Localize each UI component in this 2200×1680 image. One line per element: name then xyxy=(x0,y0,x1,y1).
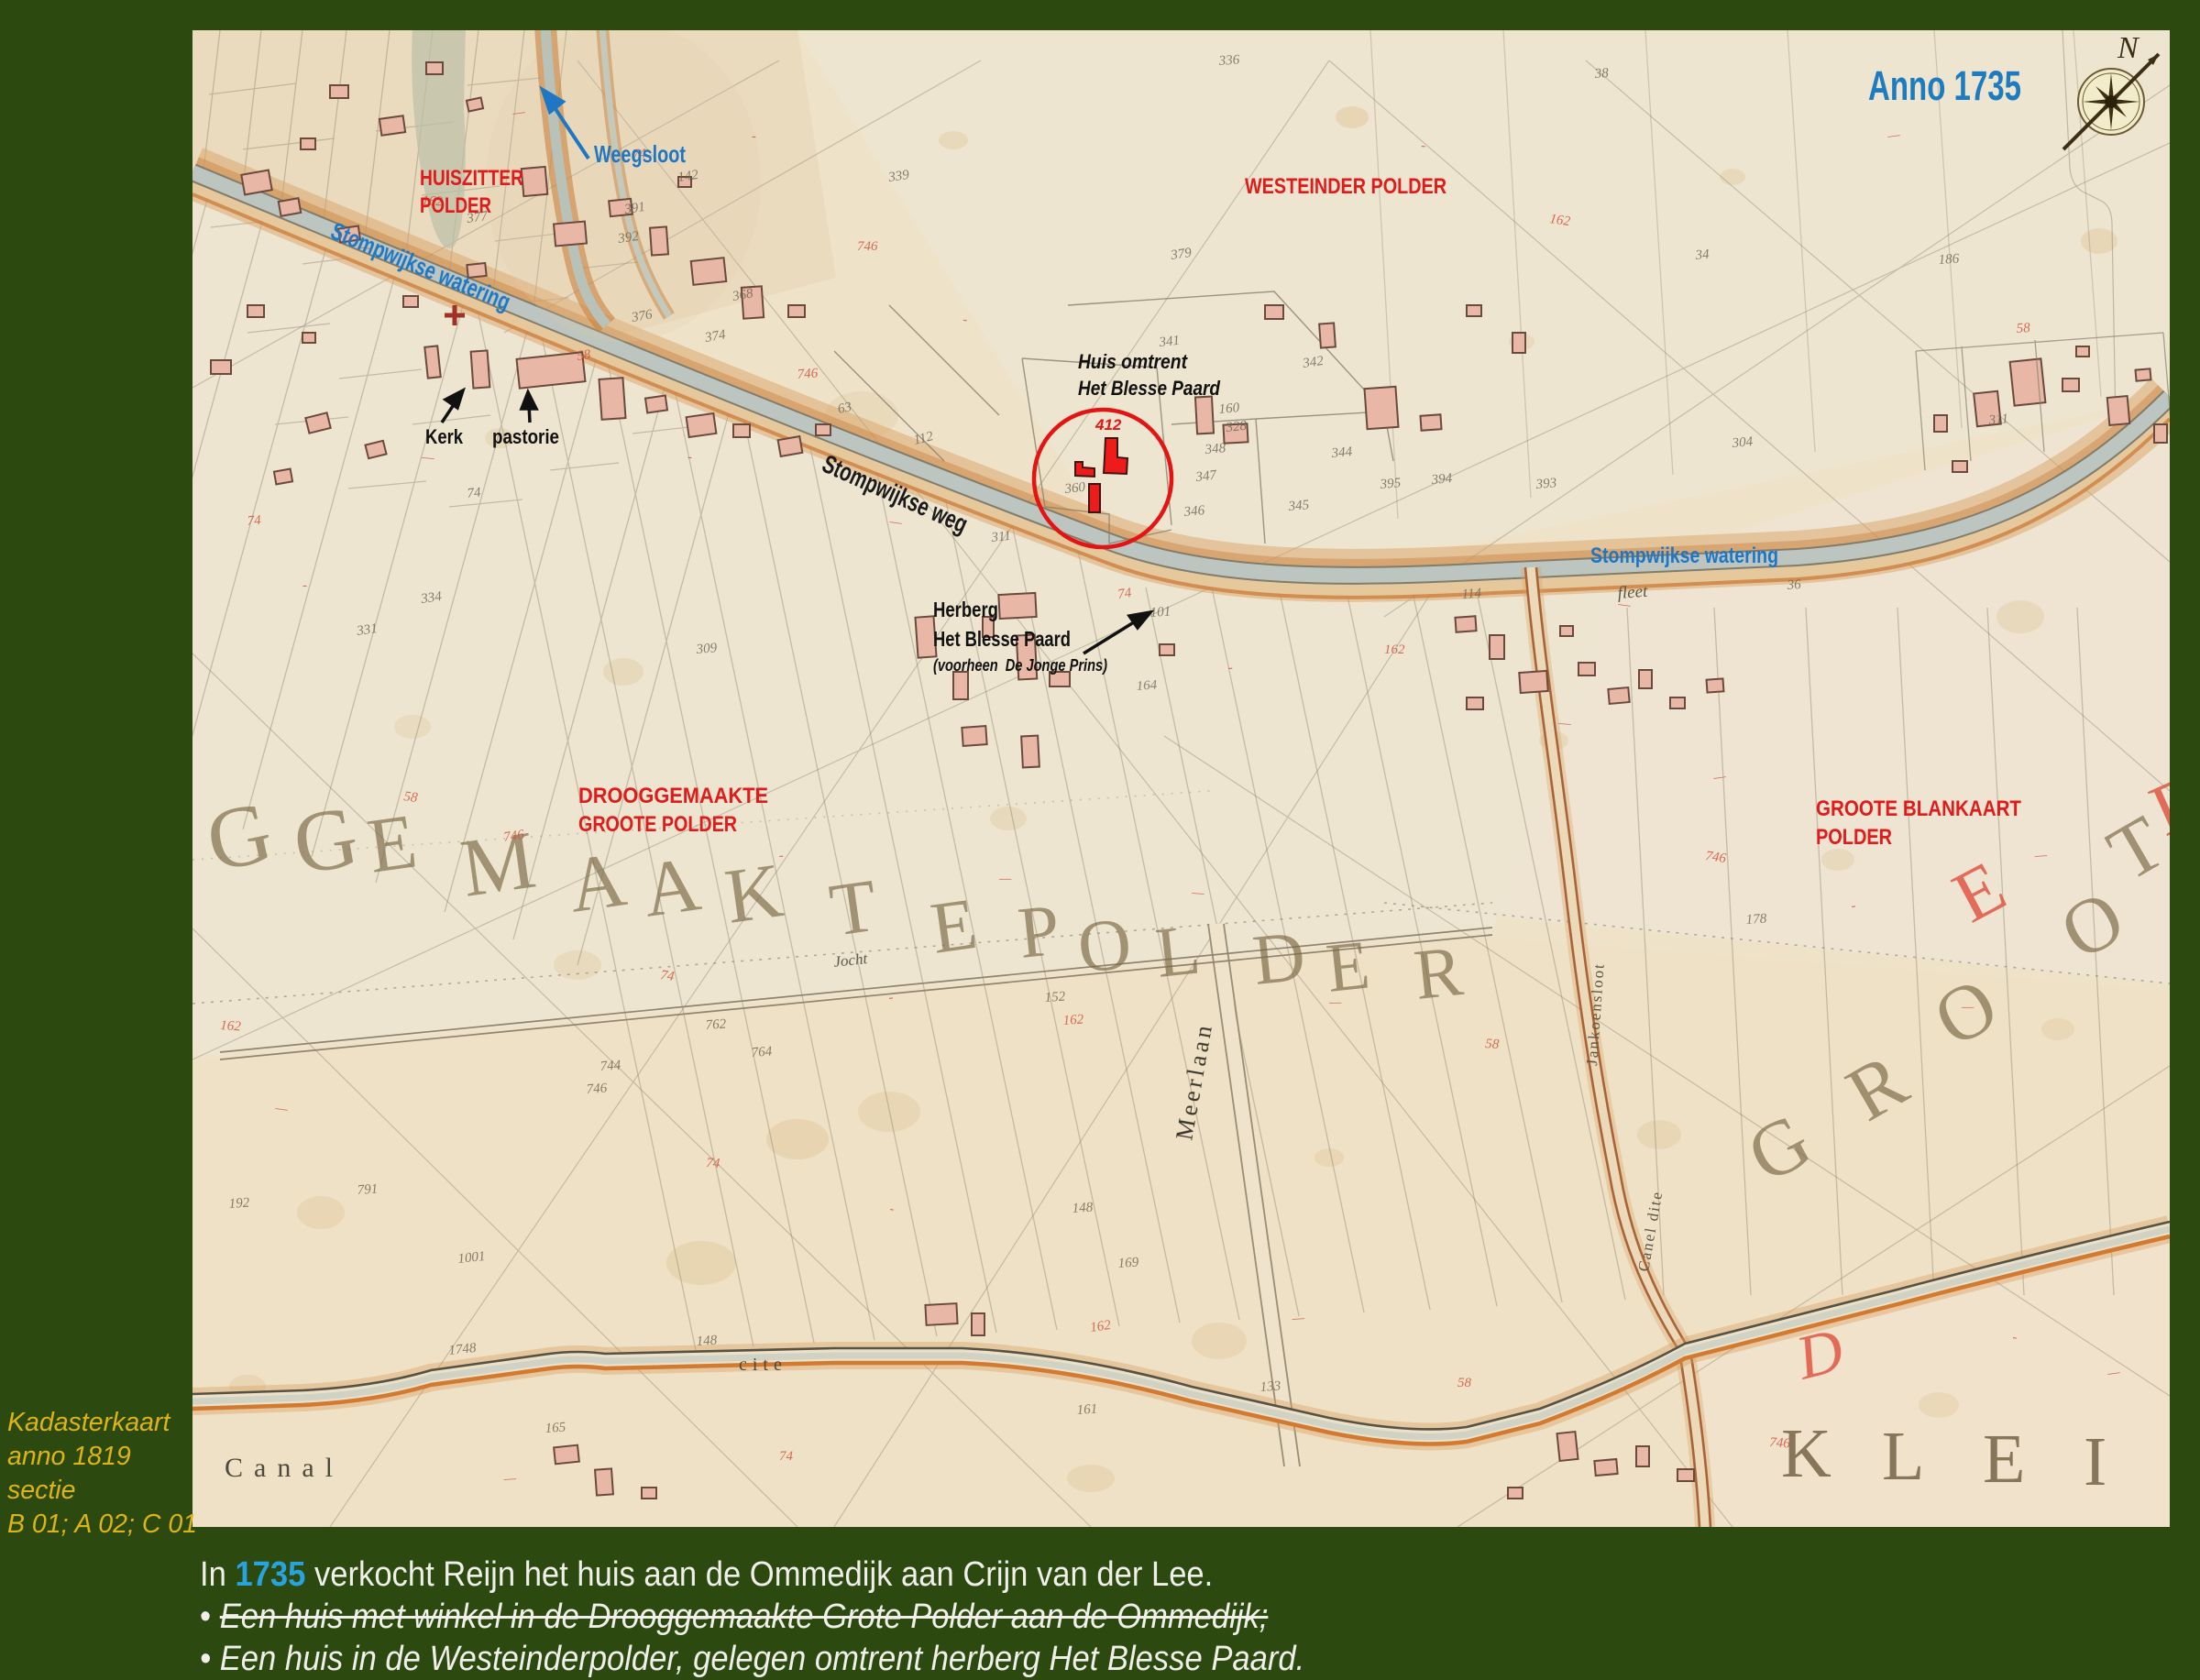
svg-text:A: A xyxy=(564,836,632,929)
svg-text:K: K xyxy=(1781,1415,1831,1492)
svg-text:186: 186 xyxy=(1938,251,1960,268)
svg-text:348: 348 xyxy=(1204,441,1226,457)
svg-text:Canal: Canal xyxy=(225,1453,344,1483)
svg-text:(voorheen De Jonge Prins): (voorheen De Jonge Prins) xyxy=(933,656,1107,675)
svg-text:331: 331 xyxy=(355,621,378,639)
svg-text:—: — xyxy=(421,450,435,466)
svg-text:-: - xyxy=(687,450,692,465)
svg-text:1001: 1001 xyxy=(457,1249,487,1267)
svg-text:fleet: fleet xyxy=(1617,582,1649,603)
svg-text:58: 58 xyxy=(1485,1037,1501,1052)
svg-text:746: 746 xyxy=(857,239,878,254)
svg-text:Anno 1735: Anno 1735 xyxy=(1868,62,2021,109)
svg-text:379: 379 xyxy=(1169,246,1193,263)
svg-text:142: 142 xyxy=(676,168,699,185)
svg-text:36: 36 xyxy=(1786,577,1802,593)
svg-text:169: 169 xyxy=(1117,1255,1139,1271)
svg-text:L: L xyxy=(1152,908,1204,993)
svg-text:164: 164 xyxy=(1136,677,1158,694)
svg-text:—: — xyxy=(1557,716,1572,731)
svg-text:334: 334 xyxy=(419,589,443,607)
svg-text:58: 58 xyxy=(2016,321,2031,336)
svg-text:395: 395 xyxy=(1379,476,1402,492)
svg-text:391: 391 xyxy=(622,200,645,217)
svg-text:E: E xyxy=(1983,1421,2025,1498)
svg-text:339: 339 xyxy=(886,168,910,185)
svg-text:162: 162 xyxy=(1384,642,1405,657)
svg-text:764: 764 xyxy=(751,1044,773,1060)
svg-text:311: 311 xyxy=(990,529,1012,545)
svg-text:311: 311 xyxy=(1987,412,2009,428)
svg-text:Het Blesse Paard: Het Blesse Paard xyxy=(1078,377,1220,400)
svg-text:746: 746 xyxy=(1704,849,1727,866)
svg-text:133: 133 xyxy=(1259,1378,1281,1395)
svg-text:—: — xyxy=(887,514,903,531)
svg-text:K: K xyxy=(720,847,788,940)
svg-text:P: P xyxy=(1015,890,1063,974)
svg-text:162: 162 xyxy=(1089,1318,1112,1335)
svg-text:178: 178 xyxy=(1745,911,1767,928)
svg-text:101: 101 xyxy=(1149,604,1171,620)
svg-text:O: O xyxy=(1074,903,1136,989)
svg-text:392: 392 xyxy=(616,229,640,247)
svg-text:DROOGGEMAAKTE: DROOGGEMAAKTE xyxy=(578,784,768,808)
svg-text:Herberg: Herberg xyxy=(933,598,998,621)
svg-text:160: 160 xyxy=(1218,401,1240,417)
svg-text:393: 393 xyxy=(1534,476,1557,492)
svg-text:cite: cite xyxy=(739,1355,787,1375)
svg-text:Huis omtrent: Huis omtrent xyxy=(1078,350,1188,373)
svg-text:360: 360 xyxy=(1063,480,1087,497)
svg-text:POLDER: POLDER xyxy=(1816,825,1892,850)
svg-text:—: — xyxy=(2033,848,2048,863)
svg-text:A: A xyxy=(638,840,706,934)
svg-text:165: 165 xyxy=(544,1420,566,1436)
svg-text:-: - xyxy=(752,129,756,144)
svg-text:148: 148 xyxy=(1072,1200,1094,1216)
svg-text:34: 34 xyxy=(1694,247,1710,263)
svg-text:—: — xyxy=(1191,885,1205,901)
svg-text:74: 74 xyxy=(247,513,262,529)
svg-text:Jocht: Jocht xyxy=(832,950,869,971)
svg-text:74: 74 xyxy=(467,485,482,501)
svg-text:—: — xyxy=(998,872,1012,886)
svg-text:GROOTE BLANKAART: GROOTE BLANKAART xyxy=(1816,796,2021,821)
svg-text:304: 304 xyxy=(1731,434,1754,451)
svg-text:D: D xyxy=(1249,915,1309,999)
svg-text:Stompwijkse watering: Stompwijkse watering xyxy=(1590,544,1778,568)
svg-text:—: — xyxy=(511,104,526,121)
svg-text:328: 328 xyxy=(1225,419,1248,435)
svg-text:—: — xyxy=(273,1101,289,1117)
svg-text:162: 162 xyxy=(220,1018,242,1035)
svg-text:394: 394 xyxy=(1430,471,1453,488)
svg-text:58: 58 xyxy=(402,789,419,806)
svg-text:—: — xyxy=(1886,127,1901,144)
svg-text:746: 746 xyxy=(586,1081,608,1097)
svg-text:GROOTE POLDER: GROOTE POLDER xyxy=(578,812,737,837)
svg-text:162: 162 xyxy=(1062,1012,1084,1028)
svg-text:746: 746 xyxy=(797,366,819,382)
svg-text:—: — xyxy=(1961,1000,1974,1015)
svg-text:74: 74 xyxy=(1116,586,1133,602)
svg-text:791: 791 xyxy=(357,1181,379,1198)
svg-text:341: 341 xyxy=(1158,334,1181,350)
svg-text:R: R xyxy=(1411,930,1467,1015)
svg-text:192: 192 xyxy=(228,1195,250,1212)
svg-text:345: 345 xyxy=(1287,498,1310,514)
svg-text:HUISZITTER: HUISZITTER xyxy=(420,166,523,191)
svg-text:Weegsloot: Weegsloot xyxy=(594,140,686,168)
svg-text:N: N xyxy=(2117,31,2140,65)
svg-text:I: I xyxy=(2084,1423,2106,1500)
svg-text:WESTEINDER POLDER: WESTEINDER POLDER xyxy=(1245,174,1446,199)
svg-text:162: 162 xyxy=(1548,212,1571,229)
svg-text:744: 744 xyxy=(599,1058,621,1074)
svg-text:161: 161 xyxy=(1076,1401,1098,1418)
svg-text:—: — xyxy=(1328,995,1342,1010)
svg-text:336: 336 xyxy=(1217,52,1240,69)
svg-text:148: 148 xyxy=(696,1333,718,1349)
svg-text:347: 347 xyxy=(1194,468,1219,486)
svg-text:38: 38 xyxy=(1593,66,1610,82)
svg-text:—: — xyxy=(1291,1311,1305,1326)
svg-text:74: 74 xyxy=(659,968,676,984)
svg-text:—: — xyxy=(2106,1365,2121,1381)
svg-text:342: 342 xyxy=(1301,354,1325,371)
svg-text:152: 152 xyxy=(1044,989,1066,1005)
svg-text:pastorie: pastorie xyxy=(492,425,559,448)
svg-text:74: 74 xyxy=(779,1449,794,1464)
svg-text:344: 344 xyxy=(1330,445,1353,461)
svg-text:58: 58 xyxy=(1457,1376,1472,1390)
svg-text:746: 746 xyxy=(1769,1435,1791,1452)
svg-text:-: - xyxy=(302,578,307,593)
svg-text:58: 58 xyxy=(576,347,592,364)
svg-text:762: 762 xyxy=(705,1016,727,1033)
svg-text:L: L xyxy=(1882,1418,1924,1495)
svg-text:1748: 1748 xyxy=(448,1341,478,1358)
svg-text:309: 309 xyxy=(695,641,718,657)
svg-text:74: 74 xyxy=(706,1156,721,1171)
svg-text:Het Blesse Paard: Het Blesse Paard xyxy=(933,627,1071,651)
svg-text:412: 412 xyxy=(1094,416,1122,434)
svg-text:—: — xyxy=(1711,769,1727,785)
svg-text:114: 114 xyxy=(1461,587,1482,602)
svg-text:POLDER: POLDER xyxy=(420,193,491,218)
svg-text:746: 746 xyxy=(502,828,525,845)
svg-text:—: — xyxy=(502,1471,517,1487)
svg-text:M: M xyxy=(456,815,541,915)
svg-text:Kerk: Kerk xyxy=(425,425,464,448)
svg-text:346: 346 xyxy=(1182,503,1205,520)
